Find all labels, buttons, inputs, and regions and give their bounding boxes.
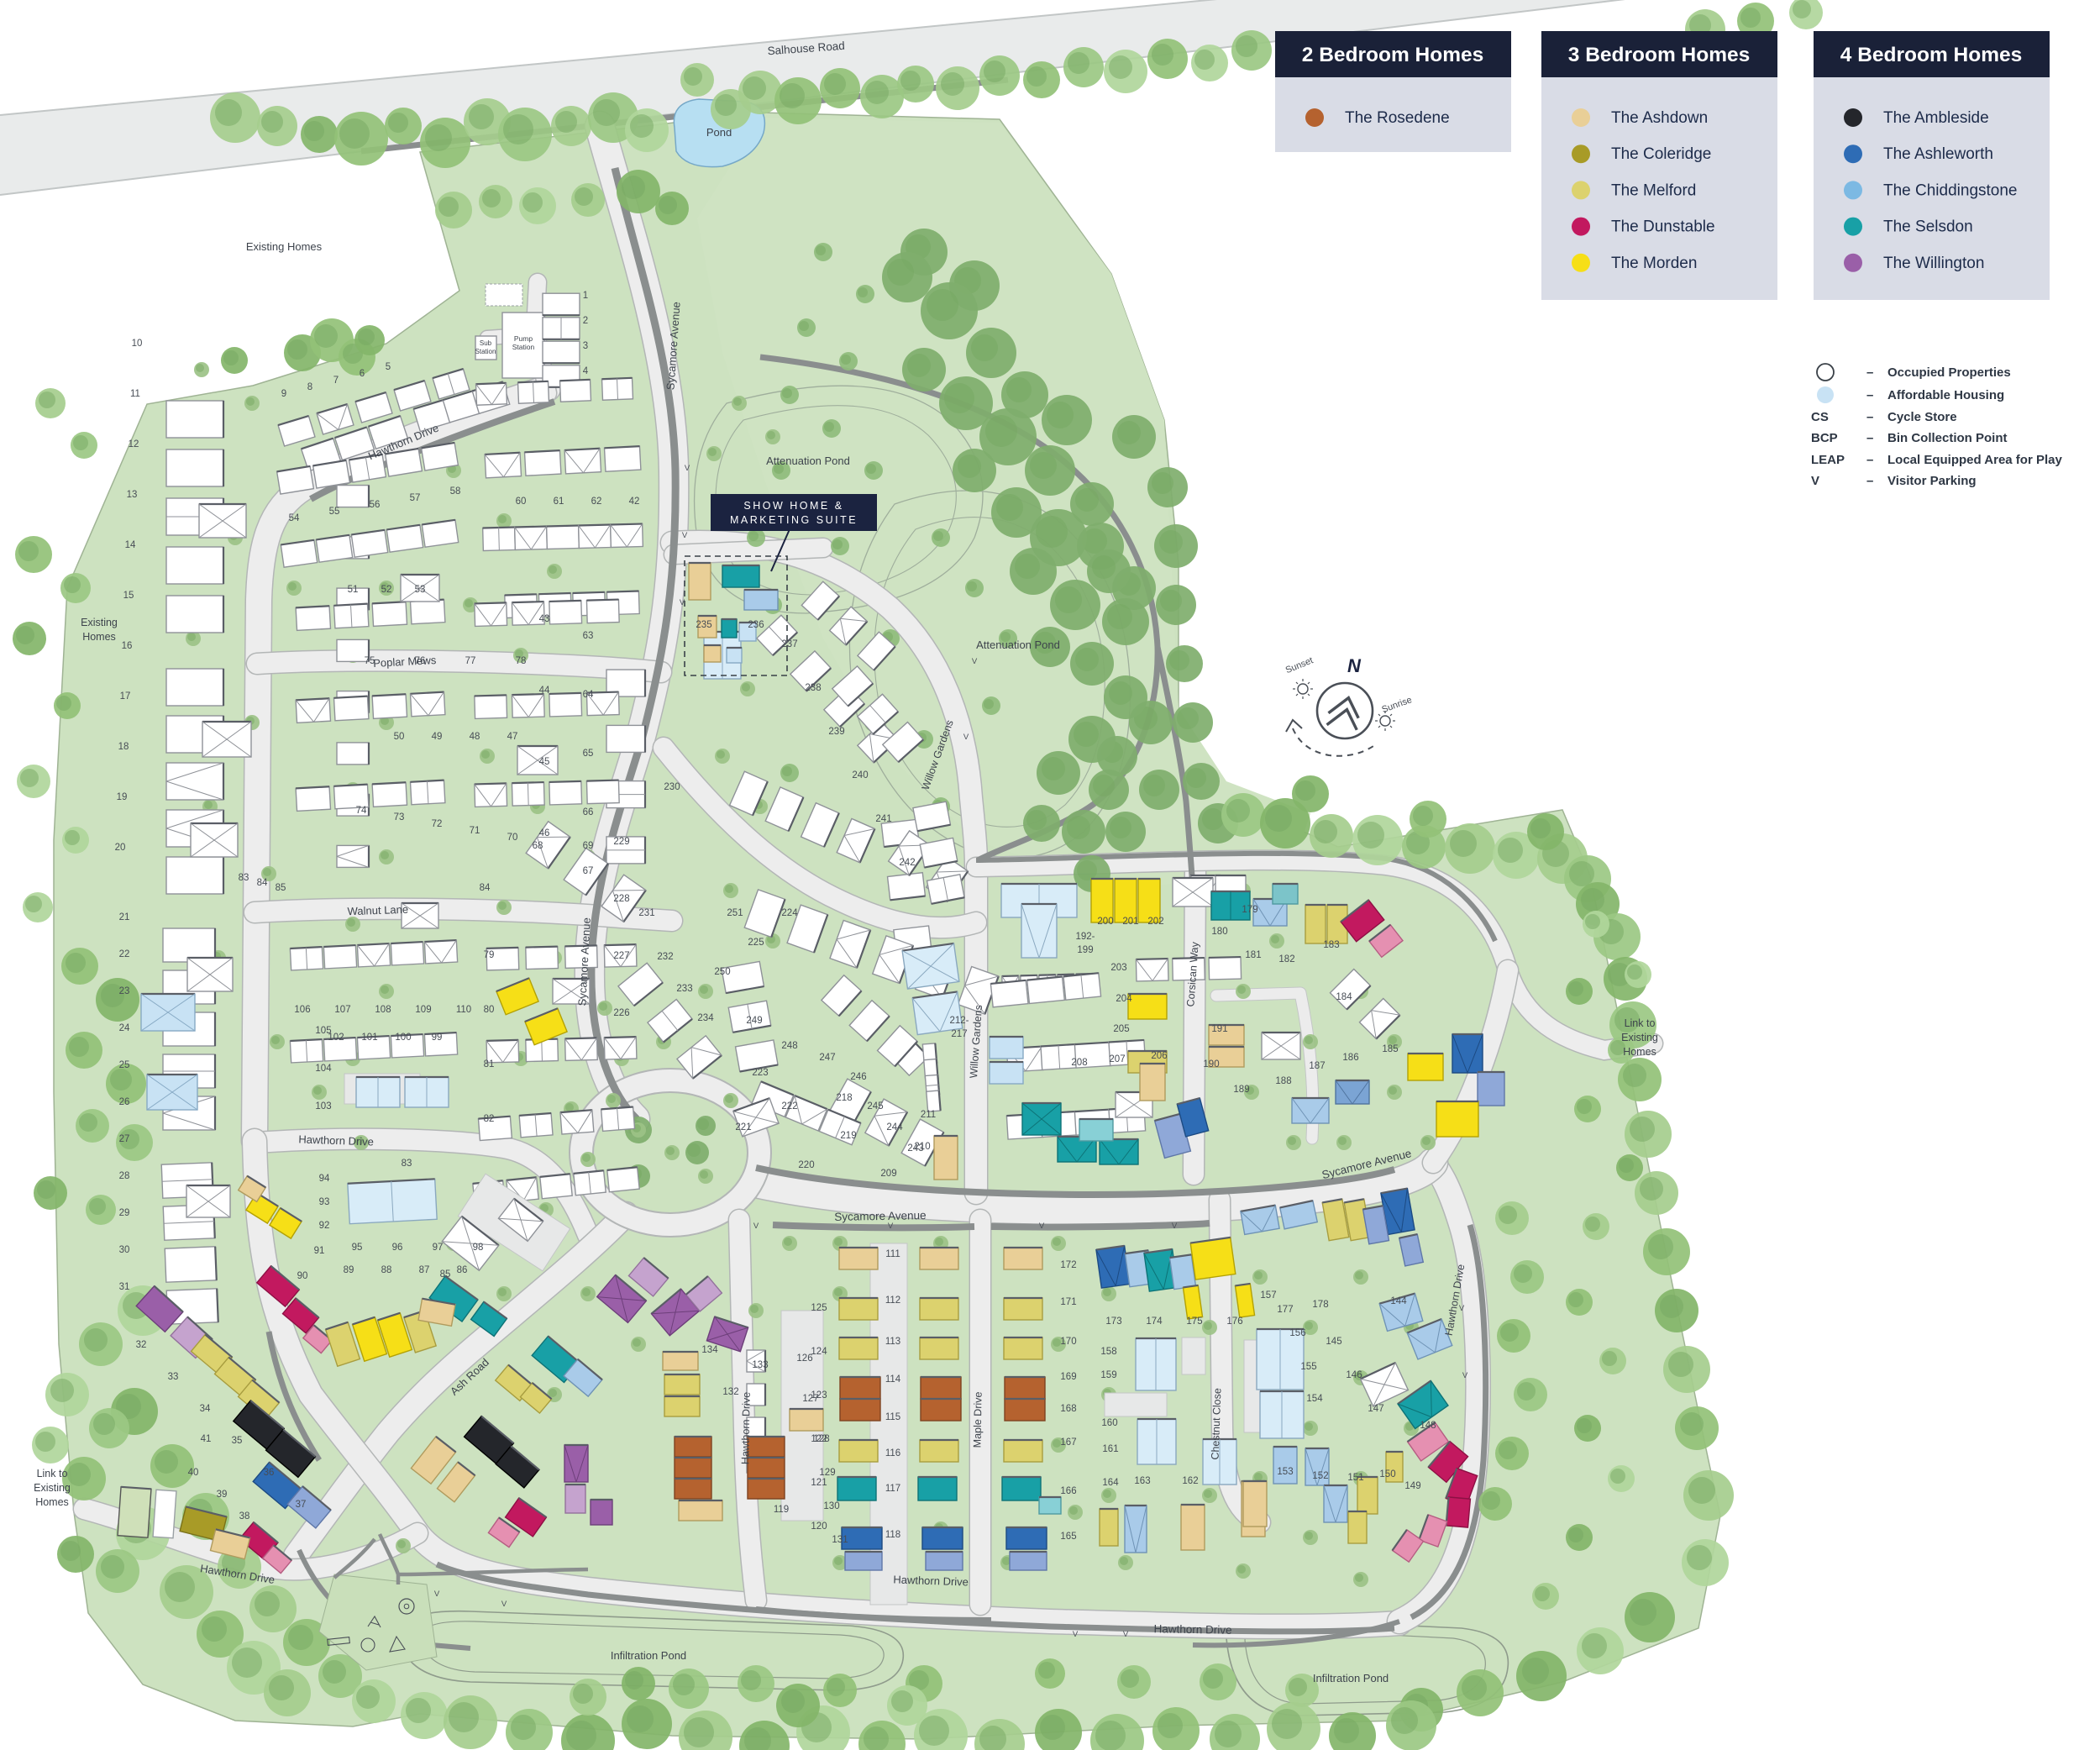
svg-text:14: 14 <box>125 540 136 550</box>
svg-text:Occupied Properties: Occupied Properties <box>1887 365 2011 380</box>
svg-text:Hawthorn Drive: Hawthorn Drive <box>893 1573 969 1588</box>
svg-text:74: 74 <box>356 806 367 816</box>
svg-text:7: 7 <box>333 376 339 386</box>
svg-text:107: 107 <box>334 1005 350 1015</box>
svg-text:–: – <box>1866 453 1873 467</box>
svg-text:218: 218 <box>836 1093 852 1103</box>
svg-text:159: 159 <box>1100 1370 1116 1380</box>
svg-text:35: 35 <box>232 1436 243 1446</box>
svg-text:113: 113 <box>885 1337 900 1347</box>
svg-text:The Selsdon: The Selsdon <box>1883 218 1973 236</box>
svg-text:178: 178 <box>1312 1300 1328 1310</box>
svg-text:233: 233 <box>676 984 692 994</box>
svg-text:226: 226 <box>613 1008 629 1018</box>
svg-text:245: 245 <box>867 1101 883 1111</box>
svg-text:83: 83 <box>239 873 249 883</box>
svg-text:147: 147 <box>1368 1404 1383 1414</box>
svg-text:The Morden: The Morden <box>1611 255 1697 272</box>
svg-text:173: 173 <box>1105 1316 1121 1327</box>
svg-text:Cycle Store: Cycle Store <box>1887 410 1957 424</box>
svg-text:146: 146 <box>1346 1370 1362 1380</box>
svg-text:–: – <box>1866 388 1873 402</box>
svg-text:–: – <box>1866 474 1873 488</box>
svg-text:Station: Station <box>512 343 535 351</box>
svg-text:41: 41 <box>201 1434 212 1444</box>
svg-text:106: 106 <box>294 1005 310 1015</box>
svg-text:8: 8 <box>307 382 312 392</box>
svg-text:191: 191 <box>1211 1024 1227 1034</box>
svg-text:219: 219 <box>840 1131 856 1141</box>
svg-text:177: 177 <box>1277 1305 1293 1315</box>
svg-text:125: 125 <box>811 1303 827 1313</box>
svg-text:224: 224 <box>781 908 798 918</box>
svg-text:120: 120 <box>811 1521 827 1532</box>
svg-text:189: 189 <box>1233 1085 1249 1095</box>
svg-text:6: 6 <box>360 369 365 379</box>
svg-text:40: 40 <box>188 1468 199 1478</box>
svg-text:166: 166 <box>1060 1486 1076 1496</box>
svg-text:221: 221 <box>735 1122 751 1133</box>
svg-text:2 Bedroom Homes: 2 Bedroom Homes <box>1302 44 1483 66</box>
svg-text:95: 95 <box>352 1243 363 1253</box>
svg-text:68: 68 <box>533 841 543 851</box>
svg-text:Existing: Existing <box>81 617 118 628</box>
svg-text:72: 72 <box>432 819 443 829</box>
svg-text:28: 28 <box>119 1171 130 1181</box>
svg-text:237: 237 <box>781 639 797 649</box>
svg-text:161: 161 <box>1102 1444 1118 1454</box>
svg-text:175: 175 <box>1186 1316 1202 1327</box>
svg-text:249: 249 <box>746 1016 762 1026</box>
svg-text:96: 96 <box>392 1243 403 1253</box>
svg-text:Link to: Link to <box>37 1468 68 1479</box>
svg-text:206: 206 <box>1151 1051 1167 1061</box>
svg-text:Attenuation Pond: Attenuation Pond <box>976 639 1060 651</box>
svg-text:Existing: Existing <box>1621 1032 1658 1043</box>
svg-text:82: 82 <box>484 1114 495 1124</box>
svg-text:–: – <box>1866 410 1873 424</box>
svg-text:26: 26 <box>119 1097 130 1107</box>
svg-text:–: – <box>1866 431 1873 445</box>
svg-text:150: 150 <box>1379 1469 1395 1479</box>
svg-text:242: 242 <box>899 858 915 868</box>
svg-text:132: 132 <box>722 1387 738 1397</box>
svg-text:121: 121 <box>811 1478 827 1488</box>
svg-text:187: 187 <box>1309 1061 1325 1071</box>
svg-text:30: 30 <box>119 1245 130 1255</box>
svg-text:44: 44 <box>539 686 550 696</box>
svg-text:217: 217 <box>951 1029 967 1039</box>
svg-text:169: 169 <box>1060 1372 1076 1382</box>
svg-text:Chestnut Close: Chestnut Close <box>1210 1388 1224 1460</box>
svg-text:16: 16 <box>122 641 133 651</box>
svg-text:97: 97 <box>433 1243 444 1253</box>
svg-text:Homes: Homes <box>1623 1046 1656 1058</box>
svg-text:V: V <box>685 464 690 473</box>
svg-text:11: 11 <box>130 389 140 399</box>
svg-text:204: 204 <box>1116 994 1132 1004</box>
svg-text:158: 158 <box>1100 1347 1116 1357</box>
svg-text:Hawthorn Drive: Hawthorn Drive <box>1153 1622 1231 1637</box>
svg-text:66: 66 <box>583 807 594 817</box>
svg-text:55: 55 <box>329 507 340 517</box>
svg-text:60: 60 <box>516 497 527 507</box>
svg-text:211: 211 <box>921 1110 936 1120</box>
svg-text:98: 98 <box>473 1243 484 1253</box>
svg-text:246: 246 <box>850 1072 866 1082</box>
svg-text:V: V <box>1462 1371 1468 1380</box>
svg-text:V: V <box>1123 1630 1129 1639</box>
svg-text:238: 238 <box>805 683 821 693</box>
svg-text:45: 45 <box>539 757 550 767</box>
svg-text:5: 5 <box>386 362 391 372</box>
svg-text:SHOW HOME &: SHOW HOME & <box>743 500 843 512</box>
svg-text:83: 83 <box>402 1159 412 1169</box>
svg-text:163: 163 <box>1134 1476 1150 1486</box>
svg-text:–: – <box>1866 365 1873 380</box>
svg-text:108: 108 <box>375 1005 391 1015</box>
svg-text:228: 228 <box>613 894 629 904</box>
svg-text:119: 119 <box>774 1505 789 1515</box>
svg-text:167: 167 <box>1060 1437 1076 1448</box>
svg-text:220: 220 <box>798 1160 814 1170</box>
svg-text:152: 152 <box>1312 1471 1328 1481</box>
svg-text:65: 65 <box>583 749 594 759</box>
svg-text:230: 230 <box>664 782 680 792</box>
svg-text:202: 202 <box>1147 917 1163 927</box>
svg-text:114: 114 <box>885 1374 901 1385</box>
svg-text:V: V <box>1811 474 1819 488</box>
svg-text:N: N <box>1347 655 1362 676</box>
svg-text:84: 84 <box>480 883 491 893</box>
svg-text:234: 234 <box>697 1013 714 1023</box>
svg-text:94: 94 <box>319 1174 330 1184</box>
svg-text:13: 13 <box>127 490 138 500</box>
svg-text:62: 62 <box>591 497 602 507</box>
svg-text:63: 63 <box>583 631 594 641</box>
svg-text:93: 93 <box>319 1197 330 1207</box>
svg-text:182: 182 <box>1278 954 1294 964</box>
svg-text:85: 85 <box>276 883 286 893</box>
svg-text:Local Equipped Area for Play: Local Equipped Area for Play <box>1887 453 2062 467</box>
svg-text:LEAP: LEAP <box>1811 453 1845 467</box>
svg-text:Homes: Homes <box>35 1496 69 1508</box>
svg-text:51: 51 <box>348 585 359 595</box>
svg-text:134: 134 <box>701 1345 718 1355</box>
svg-text:Affordable Housing: Affordable Housing <box>1887 388 2004 402</box>
svg-text:Sub: Sub <box>480 339 492 347</box>
svg-text:162: 162 <box>1182 1476 1198 1486</box>
svg-text:48: 48 <box>470 732 480 742</box>
svg-text:47: 47 <box>507 732 518 742</box>
svg-text:V: V <box>1073 1630 1079 1639</box>
svg-text:36: 36 <box>264 1468 275 1478</box>
svg-text:101: 101 <box>361 1033 377 1043</box>
svg-text:184: 184 <box>1336 992 1352 1002</box>
svg-text:90: 90 <box>297 1271 308 1281</box>
svg-text:192-: 192- <box>1075 932 1095 942</box>
svg-text:67: 67 <box>583 866 594 876</box>
svg-text:225: 225 <box>748 938 764 948</box>
svg-text:133: 133 <box>752 1360 768 1370</box>
svg-text:22: 22 <box>119 949 130 959</box>
svg-text:144: 144 <box>1390 1296 1407 1306</box>
svg-text:155: 155 <box>1300 1362 1316 1372</box>
svg-text:12: 12 <box>129 439 139 449</box>
svg-text:100: 100 <box>395 1033 411 1043</box>
svg-text:91: 91 <box>314 1246 325 1256</box>
svg-text:50: 50 <box>394 732 405 742</box>
svg-text:34: 34 <box>200 1404 211 1414</box>
svg-text:227: 227 <box>613 951 629 961</box>
svg-text:232: 232 <box>657 952 673 962</box>
svg-text:186: 186 <box>1342 1053 1358 1063</box>
svg-text:205: 205 <box>1113 1024 1129 1034</box>
svg-text:131: 131 <box>832 1535 848 1545</box>
svg-text:56: 56 <box>370 500 381 510</box>
svg-text:111: 111 <box>885 1249 900 1259</box>
svg-text:Hawthorn Drive: Hawthorn Drive <box>739 1392 753 1464</box>
svg-text:42: 42 <box>629 497 640 507</box>
svg-text:103: 103 <box>315 1101 331 1111</box>
svg-text:38: 38 <box>239 1511 250 1521</box>
svg-text:V: V <box>680 598 685 607</box>
svg-text:118: 118 <box>885 1530 900 1540</box>
svg-text:V: V <box>501 1600 507 1609</box>
svg-text:199: 199 <box>1077 945 1093 955</box>
svg-text:105: 105 <box>315 1026 331 1036</box>
svg-text:V: V <box>434 1590 440 1599</box>
svg-text:207: 207 <box>1109 1054 1125 1064</box>
svg-text:190: 190 <box>1203 1059 1219 1069</box>
svg-text:223: 223 <box>752 1068 768 1078</box>
svg-text:185: 185 <box>1382 1044 1398 1054</box>
svg-text:78: 78 <box>516 656 527 666</box>
svg-text:The Ashleworth: The Ashleworth <box>1883 145 1993 163</box>
svg-text:247: 247 <box>819 1053 835 1063</box>
svg-text:MARKETING SUITE: MARKETING SUITE <box>730 514 858 526</box>
svg-text:127: 127 <box>802 1394 818 1404</box>
svg-text:231: 231 <box>638 908 654 918</box>
svg-text:18: 18 <box>118 742 129 752</box>
svg-text:89: 89 <box>344 1265 354 1275</box>
svg-text:99: 99 <box>432 1033 443 1043</box>
svg-text:160: 160 <box>1101 1418 1117 1428</box>
svg-text:172: 172 <box>1060 1260 1076 1270</box>
svg-text:BCP: BCP <box>1811 431 1838 445</box>
svg-text:9: 9 <box>281 389 286 399</box>
svg-text:The Dunstable: The Dunstable <box>1611 218 1715 236</box>
svg-text:V: V <box>972 657 978 666</box>
svg-text:The Ashdown: The Ashdown <box>1611 109 1708 127</box>
svg-text:58: 58 <box>450 486 461 497</box>
svg-text:85: 85 <box>440 1269 451 1280</box>
svg-text:168: 168 <box>1060 1404 1076 1414</box>
svg-text:53: 53 <box>415 585 426 595</box>
svg-text:19: 19 <box>117 792 128 802</box>
svg-text:212-: 212- <box>949 1016 969 1026</box>
svg-text:61: 61 <box>554 497 564 507</box>
svg-text:CS: CS <box>1811 410 1829 424</box>
svg-text:109: 109 <box>415 1005 431 1015</box>
svg-text:33: 33 <box>168 1372 179 1382</box>
svg-text:10: 10 <box>132 339 143 349</box>
svg-text:V: V <box>1459 1304 1465 1313</box>
svg-text:Visitor Parking: Visitor Parking <box>1887 474 1977 488</box>
svg-text:46: 46 <box>539 828 550 838</box>
svg-text:201: 201 <box>1122 917 1138 927</box>
svg-text:250: 250 <box>714 967 730 977</box>
svg-text:37: 37 <box>296 1500 307 1510</box>
svg-text:181: 181 <box>1245 950 1261 960</box>
svg-text:21: 21 <box>119 912 130 922</box>
svg-text:43: 43 <box>539 614 550 624</box>
svg-text:27: 27 <box>119 1134 130 1144</box>
svg-text:156: 156 <box>1289 1328 1305 1338</box>
svg-text:Walnut Lane: Walnut Lane <box>347 903 408 918</box>
svg-text:126: 126 <box>796 1353 812 1364</box>
svg-text:20: 20 <box>115 843 126 853</box>
svg-text:V: V <box>1039 1222 1045 1231</box>
svg-text:15: 15 <box>123 591 134 601</box>
svg-text:Link to: Link to <box>1625 1017 1656 1029</box>
svg-text:52: 52 <box>381 585 392 595</box>
svg-text:164: 164 <box>1102 1478 1119 1488</box>
svg-text:39: 39 <box>217 1490 228 1500</box>
svg-text:148: 148 <box>1420 1421 1436 1431</box>
svg-text:29: 29 <box>119 1208 130 1218</box>
svg-text:180: 180 <box>1211 927 1227 937</box>
svg-text:241: 241 <box>875 814 891 824</box>
svg-text:Maple Drive: Maple Drive <box>971 1391 984 1448</box>
svg-text:V: V <box>963 733 969 742</box>
svg-text:The Rosedene: The Rosedene <box>1345 109 1450 127</box>
svg-text:The Ambleside: The Ambleside <box>1883 109 1989 127</box>
svg-text:The Coleridge: The Coleridge <box>1611 145 1711 163</box>
svg-text:153: 153 <box>1277 1467 1293 1477</box>
svg-text:251: 251 <box>727 908 743 918</box>
svg-text:57: 57 <box>410 493 421 503</box>
svg-text:77: 77 <box>465 656 476 666</box>
svg-text:116: 116 <box>885 1448 900 1458</box>
svg-text:124: 124 <box>811 1347 827 1357</box>
svg-text:Pump: Pump <box>514 334 533 343</box>
svg-text:Existing Homes: Existing Homes <box>246 240 323 253</box>
svg-text:V: V <box>888 1222 894 1231</box>
svg-text:171: 171 <box>1060 1297 1076 1307</box>
svg-text:Attenuation Pond: Attenuation Pond <box>766 455 850 467</box>
svg-text:80: 80 <box>484 1005 495 1015</box>
svg-text:235: 235 <box>696 620 711 630</box>
svg-text:115: 115 <box>885 1412 900 1422</box>
svg-text:149: 149 <box>1404 1481 1420 1491</box>
svg-text:31: 31 <box>119 1282 130 1292</box>
svg-text:V: V <box>1172 1222 1178 1231</box>
svg-text:208: 208 <box>1071 1058 1087 1068</box>
svg-text:151: 151 <box>1347 1473 1363 1483</box>
svg-text:Infiltration Pond: Infiltration Pond <box>611 1649 686 1662</box>
svg-text:128: 128 <box>813 1434 829 1444</box>
svg-text:79: 79 <box>484 950 495 960</box>
svg-text:145: 145 <box>1326 1337 1341 1347</box>
svg-text:The Willington: The Willington <box>1883 255 1984 272</box>
svg-text:188: 188 <box>1275 1076 1291 1086</box>
svg-text:17: 17 <box>120 691 131 702</box>
svg-text:179: 179 <box>1242 905 1257 915</box>
svg-text:70: 70 <box>507 833 518 843</box>
svg-text:176: 176 <box>1226 1316 1242 1327</box>
svg-text:165: 165 <box>1060 1532 1076 1542</box>
svg-text:1: 1 <box>583 291 588 301</box>
svg-text:236: 236 <box>748 620 764 630</box>
svg-text:73: 73 <box>394 812 405 822</box>
svg-text:183: 183 <box>1323 940 1339 950</box>
svg-text:25: 25 <box>119 1060 130 1070</box>
svg-text:88: 88 <box>381 1265 392 1275</box>
svg-text:V: V <box>682 531 688 540</box>
svg-text:69: 69 <box>583 841 594 851</box>
svg-text:229: 229 <box>613 837 629 847</box>
svg-text:4: 4 <box>583 366 589 376</box>
svg-text:4 Bedroom Homes: 4 Bedroom Homes <box>1840 44 2022 66</box>
svg-text:49: 49 <box>432 732 443 742</box>
svg-text:Infiltration Pond: Infiltration Pond <box>1313 1672 1389 1684</box>
svg-text:84: 84 <box>257 878 268 888</box>
svg-text:222: 222 <box>781 1101 797 1111</box>
svg-text:24: 24 <box>119 1023 130 1033</box>
svg-text:Homes: Homes <box>82 631 116 643</box>
svg-text:64: 64 <box>583 690 594 700</box>
svg-text:81: 81 <box>484 1059 495 1069</box>
svg-text:Bin Collection Point: Bin Collection Point <box>1887 431 2008 445</box>
svg-text:Station: Station <box>475 348 496 355</box>
svg-text:3 Bedroom Homes: 3 Bedroom Homes <box>1568 44 1750 66</box>
svg-text:Sycamore Avenue: Sycamore Avenue <box>834 1209 927 1223</box>
svg-text:92: 92 <box>319 1221 330 1231</box>
svg-text:154: 154 <box>1306 1394 1323 1404</box>
svg-text:239: 239 <box>828 727 844 737</box>
svg-text:71: 71 <box>470 826 480 836</box>
svg-text:157: 157 <box>1260 1290 1276 1301</box>
svg-text:87: 87 <box>419 1265 430 1275</box>
svg-text:129: 129 <box>819 1468 835 1478</box>
svg-text:Hawthorn Drive: Hawthorn Drive <box>298 1133 374 1148</box>
svg-text:Existing: Existing <box>34 1482 71 1494</box>
svg-text:248: 248 <box>781 1041 797 1051</box>
svg-text:203: 203 <box>1110 963 1126 973</box>
svg-text:54: 54 <box>289 513 300 523</box>
svg-text:200: 200 <box>1097 917 1113 927</box>
svg-text:210: 210 <box>914 1142 930 1152</box>
svg-text:The Melford: The Melford <box>1611 181 1696 199</box>
svg-text:112: 112 <box>885 1295 900 1306</box>
svg-text:104: 104 <box>315 1064 332 1074</box>
svg-text:209: 209 <box>880 1169 896 1179</box>
svg-text:170: 170 <box>1060 1337 1076 1347</box>
svg-text:244: 244 <box>886 1122 903 1133</box>
svg-text:130: 130 <box>823 1501 839 1511</box>
svg-text:32: 32 <box>136 1340 147 1350</box>
svg-text:240: 240 <box>852 770 868 780</box>
svg-text:110: 110 <box>456 1005 471 1015</box>
svg-text:86: 86 <box>457 1265 468 1275</box>
svg-text:The Chiddingstone: The Chiddingstone <box>1883 181 2018 199</box>
svg-text:3: 3 <box>583 341 588 351</box>
svg-text:2: 2 <box>583 316 588 326</box>
svg-text:174: 174 <box>1146 1316 1163 1327</box>
svg-text:23: 23 <box>119 986 130 996</box>
svg-text:117: 117 <box>885 1484 900 1494</box>
